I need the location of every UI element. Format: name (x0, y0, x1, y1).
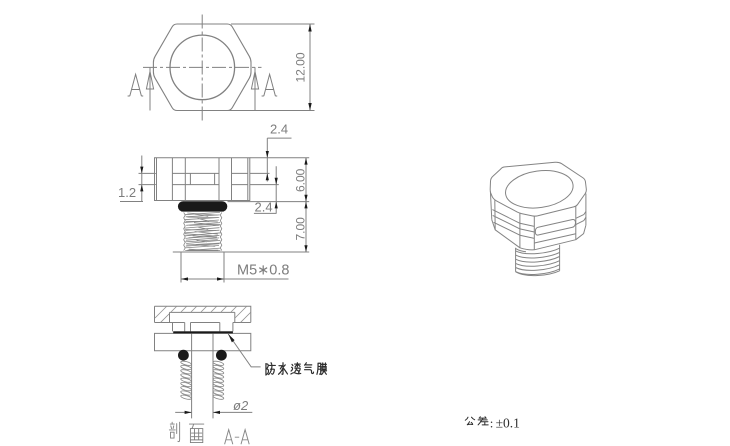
svg-text:7.00: 7.00 (294, 217, 308, 241)
svg-text:2.4: 2.4 (270, 122, 288, 137)
svg-text::: : (490, 415, 494, 430)
svg-text:12.00: 12.00 (294, 52, 308, 82)
svg-text:6.00: 6.00 (294, 168, 308, 192)
svg-text:±0.1: ±0.1 (496, 415, 520, 430)
svg-text:2.4: 2.4 (255, 200, 273, 215)
svg-text:1.2: 1.2 (118, 185, 136, 200)
svg-text:ø2: ø2 (233, 398, 249, 413)
svg-text:M5∗0.8: M5∗0.8 (237, 263, 289, 279)
